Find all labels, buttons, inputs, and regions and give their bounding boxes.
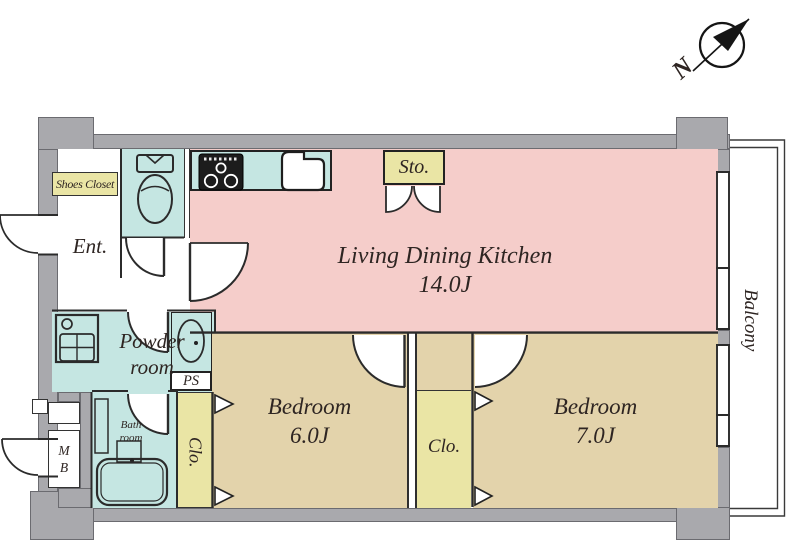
bedroom-6j-name: Bedroom <box>268 392 351 421</box>
ldk-size: 14.0J <box>419 271 472 300</box>
label-storage: Sto. <box>383 150 445 185</box>
label-bedroom-6j: Bedroom 6.0J <box>212 391 407 451</box>
label-bedroom-7j: Bedroom 7.0J <box>473 391 718 451</box>
stove-icon <box>199 154 243 190</box>
bedroom-7j-name: Bedroom <box>554 392 637 421</box>
compass-icon <box>693 19 749 71</box>
floor-plan: Shoes Closet Ent. Living Dining Kitchen … <box>0 0 800 559</box>
label-ldk: Living Dining Kitchen 14.0J <box>230 241 660 301</box>
sink-icon <box>282 152 324 190</box>
label-pipe-space: PS <box>170 371 212 391</box>
toilet-icon <box>137 155 173 223</box>
label-shoes-closet: Shoes Closet <box>52 172 118 196</box>
label-closet-bedroom-7j: Clo. <box>417 434 471 460</box>
label-entrance: Ent. <box>58 233 122 259</box>
label-closet-bedroom-6j: Clo. <box>178 415 212 490</box>
label-balcony: Balcony <box>726 272 774 368</box>
label-meter-box: M B <box>48 434 80 484</box>
bedroom-7j-size: 7.0J <box>576 421 615 450</box>
label-bath-room: Bath room <box>98 418 164 446</box>
bedroom-6j-size: 6.0J <box>290 421 329 450</box>
ldk-name: Living Dining Kitchen <box>338 242 553 271</box>
